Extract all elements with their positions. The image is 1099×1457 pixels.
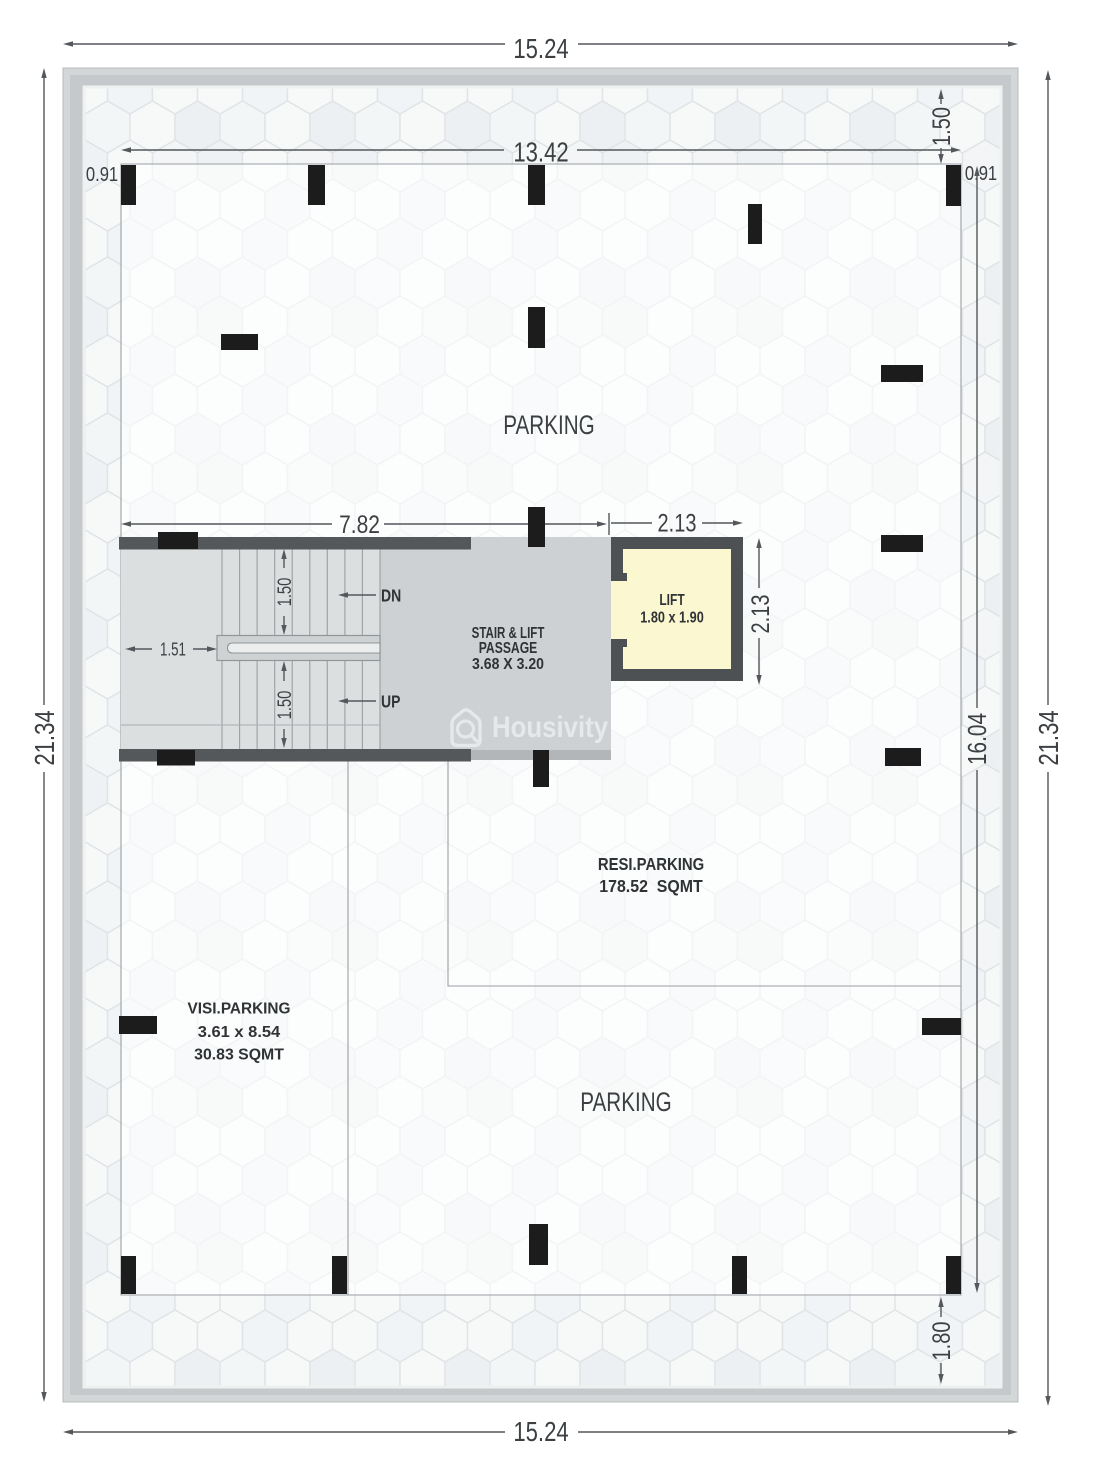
- svg-text:UP: UP: [381, 693, 401, 712]
- svg-text:VISI.PARKING: VISI.PARKING: [188, 1000, 291, 1017]
- svg-text:LIFT: LIFT: [659, 590, 685, 608]
- svg-text:3.61 x 8.54: 3.61 x 8.54: [198, 1023, 280, 1041]
- svg-text:3.68 X 3.20: 3.68 X 3.20: [472, 655, 544, 673]
- svg-text:13.42: 13.42: [513, 137, 568, 168]
- svg-text:178.52 SQMT: 178.52 SQMT: [599, 876, 703, 896]
- svg-text:21.34: 21.34: [1034, 710, 1065, 765]
- svg-text:16.04: 16.04: [963, 713, 992, 765]
- svg-text:1.80: 1.80: [928, 1322, 956, 1361]
- svg-text:1.80 x 1.90: 1.80 x 1.90: [640, 609, 704, 626]
- svg-text:15.24: 15.24: [513, 34, 568, 65]
- svg-text:1.50: 1.50: [274, 578, 295, 607]
- svg-text:2.13: 2.13: [658, 509, 697, 537]
- svg-text:Housivity: Housivity: [492, 710, 608, 743]
- svg-text:1.50: 1.50: [928, 107, 956, 146]
- svg-text:PARKING: PARKING: [580, 1088, 671, 1118]
- svg-text:30.83 SQMT: 30.83 SQMT: [194, 1046, 284, 1063]
- svg-text:2.13: 2.13: [747, 595, 775, 634]
- svg-text:15.24: 15.24: [513, 1417, 568, 1448]
- svg-text:21.34: 21.34: [30, 710, 61, 765]
- svg-text:RESI.PARKING: RESI.PARKING: [598, 855, 704, 874]
- svg-text:1.51: 1.51: [160, 639, 186, 660]
- svg-text:0.91: 0.91: [965, 161, 997, 184]
- svg-text:7.82: 7.82: [339, 510, 380, 538]
- svg-text:0.91: 0.91: [86, 162, 118, 185]
- svg-text:DN: DN: [381, 587, 401, 606]
- svg-text:1.50: 1.50: [274, 691, 295, 720]
- svg-text:PARKING: PARKING: [503, 411, 594, 441]
